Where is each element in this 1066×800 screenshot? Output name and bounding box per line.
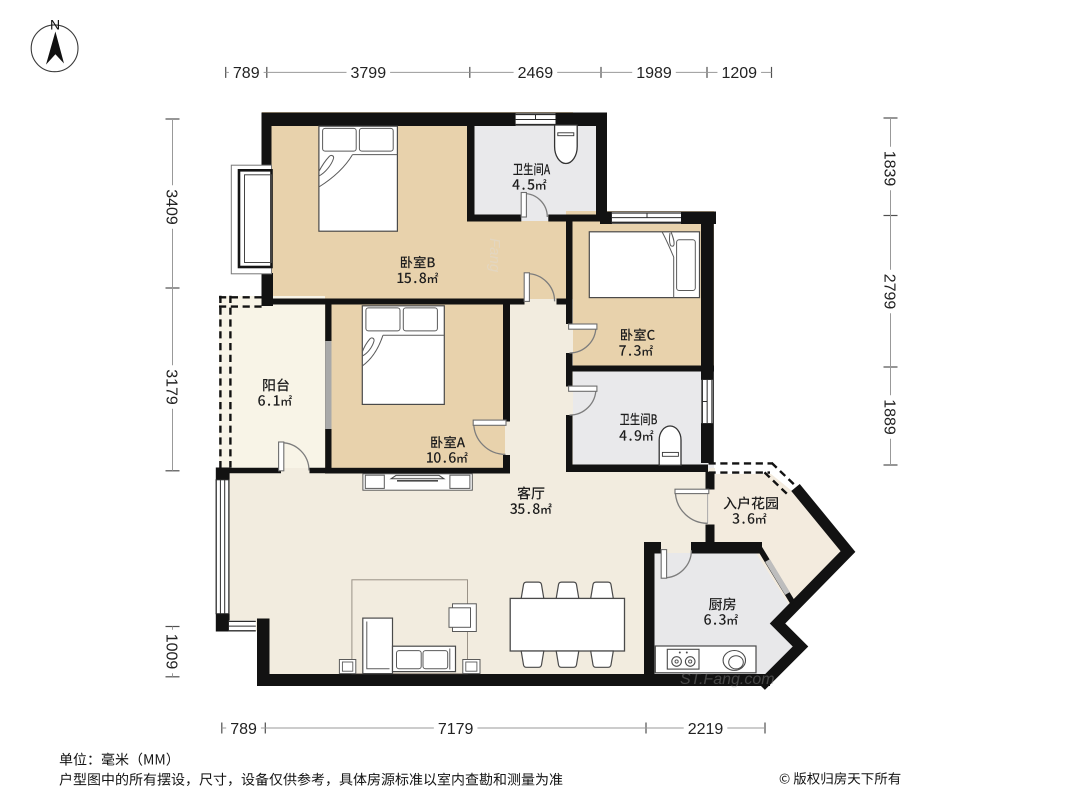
svg-text:1209: 1209 [721, 65, 757, 82]
svg-text:ST.Fang.com: ST.Fang.com [680, 671, 775, 688]
svg-text:7179: 7179 [438, 721, 474, 738]
svg-text:789: 789 [230, 721, 257, 738]
svg-text:1889: 1889 [881, 399, 898, 435]
svg-text:1839: 1839 [881, 151, 898, 187]
svg-text:2219: 2219 [688, 721, 724, 738]
svg-text:1009: 1009 [163, 634, 180, 670]
svg-text:2469: 2469 [518, 65, 554, 82]
svg-text:3409: 3409 [163, 189, 180, 225]
svg-text:789: 789 [233, 65, 260, 82]
svg-text:1989: 1989 [636, 65, 672, 82]
svg-text:3179: 3179 [163, 369, 180, 405]
svg-text:2799: 2799 [881, 274, 898, 310]
svg-text:Fang: Fang [486, 238, 503, 273]
svg-text:3799: 3799 [351, 65, 387, 82]
svg-text:N: N [50, 17, 60, 33]
